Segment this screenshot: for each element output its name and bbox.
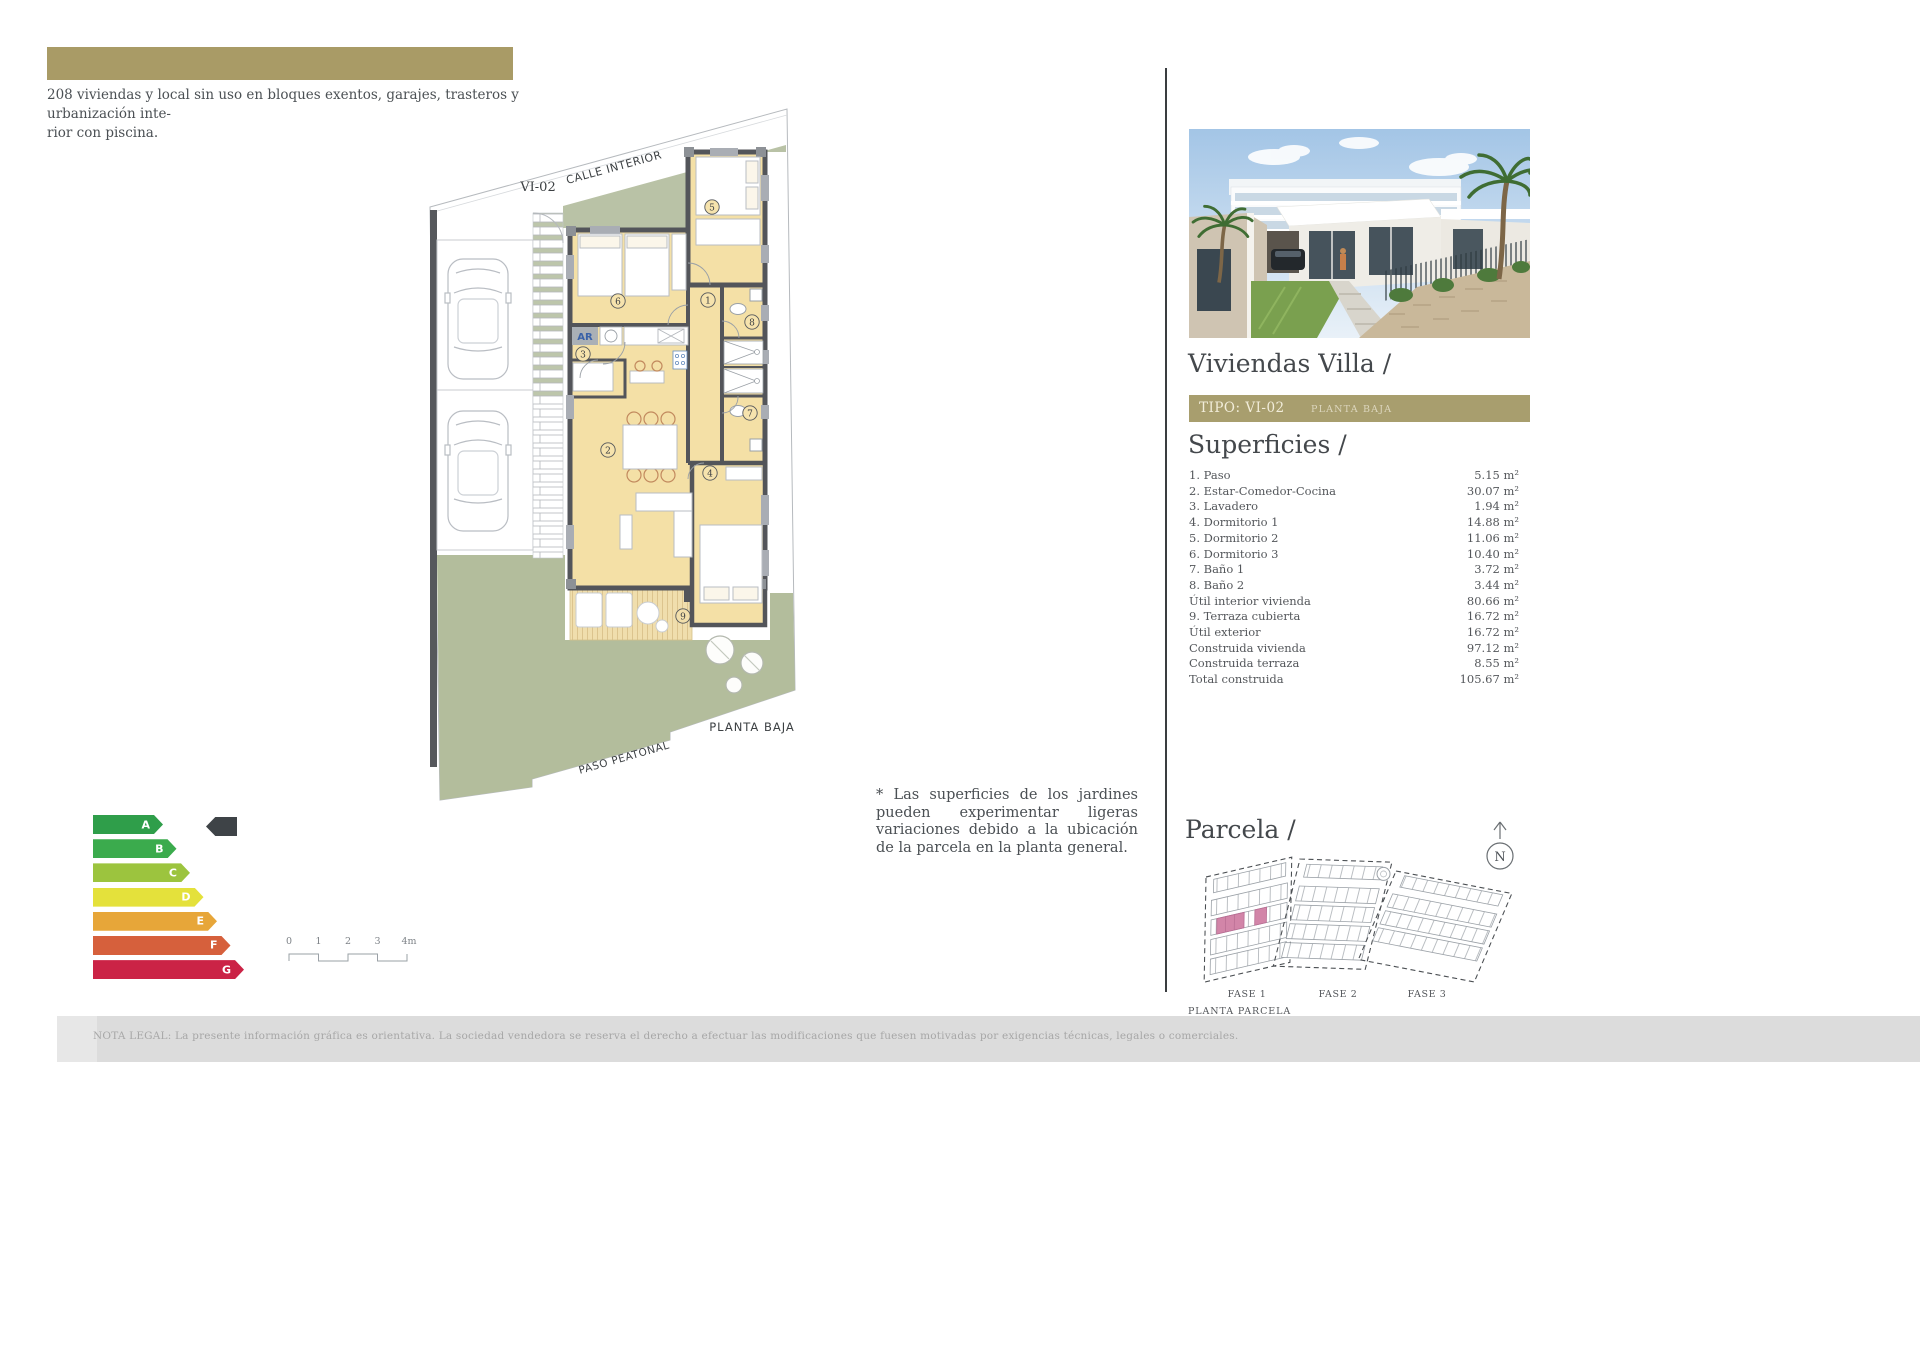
surface-row: 3. Lavadero1.94 m²: [1189, 499, 1519, 515]
energy-row-e: E: [93, 912, 293, 931]
energy-row-a: A: [93, 815, 293, 834]
fase-label-3: FASE 3: [1408, 989, 1447, 1000]
surface-value: 30.07 m²: [1467, 484, 1519, 500]
surfaces-table: 1. Paso5.15 m²2. Estar-Comedor-Cocina30.…: [1189, 468, 1519, 688]
room-5-number: 5: [709, 203, 715, 213]
energy-letter: G: [222, 963, 231, 976]
unit-label: VI-02: [519, 180, 555, 195]
surface-label: Útil exterior: [1189, 625, 1261, 641]
surface-row: 2. Estar-Comedor-Cocina30.07 m²: [1189, 484, 1519, 500]
surface-label: 5. Dormitorio 2: [1189, 531, 1278, 547]
surface-row: 4. Dormitorio 114.88 m²: [1189, 515, 1519, 531]
energy-arrow-icon: E: [93, 912, 217, 931]
room-8-number: 8: [749, 318, 755, 328]
car-bottom-icon: [445, 411, 511, 531]
villa-render-photo: [1189, 129, 1530, 338]
floor-plan-drawing: AR: [420, 95, 810, 815]
surface-value: 3.44 m²: [1474, 578, 1519, 594]
surface-row: 7. Baño 13.72 m²: [1189, 562, 1519, 578]
surface-label: 1. Paso: [1189, 468, 1231, 484]
room-9-number: 9: [680, 612, 686, 622]
energy-letter: A: [141, 818, 150, 831]
legal-bar: NOTA LEGAL: La presente información gráf…: [57, 1016, 1920, 1062]
surface-label: Construida terraza: [1189, 656, 1299, 672]
surface-value: 11.06 m²: [1467, 531, 1519, 547]
surfaces-heading: Superficies /: [1188, 430, 1347, 459]
plan-floor-label: PLANTA BAJA: [709, 720, 795, 734]
surface-row: Útil exterior16.72 m²: [1189, 625, 1519, 641]
surface-label: Útil interior vivienda: [1189, 594, 1311, 610]
energy-row-d: D: [93, 888, 293, 907]
fase-label-2: FASE 2: [1319, 989, 1358, 1000]
highlighted-plots-group: [1217, 912, 1245, 934]
surface-value: 97.12 m²: [1467, 641, 1519, 657]
hob-icon: [673, 351, 687, 369]
energy-letter: C: [169, 866, 177, 879]
energy-arrow-icon: B: [93, 839, 177, 858]
type-label: TIPO: VI-02: [1199, 400, 1285, 416]
energy-arrow-icon: G: [93, 960, 244, 979]
surface-row: 8. Baño 23.44 m²: [1189, 578, 1519, 594]
room-4-number: 4: [707, 469, 713, 479]
scale-bar: 01234m: [287, 936, 427, 966]
garden-note: * Las superficies de los jardines pueden…: [876, 787, 1138, 857]
parcela-site-plan: FASE 1FASE 2FASE 3: [1190, 843, 1530, 1003]
energy-row-b: B: [93, 839, 293, 858]
surface-value: 80.66 m²: [1467, 594, 1519, 610]
room-6-number: 6: [615, 297, 621, 307]
floor-plan: AR: [420, 95, 810, 815]
energy-efficiency-label: ABCDEFG: [93, 815, 293, 984]
surface-row: Total construida105.67 m²: [1189, 672, 1519, 688]
roundabout-icon: [1377, 867, 1390, 880]
energy-row-g: G: [93, 960, 293, 979]
energy-arrow-icon: F: [93, 936, 231, 955]
room-2-number: 2: [605, 446, 611, 456]
type-floor-label: PLANTA BAJA: [1311, 404, 1392, 415]
surface-row: 5. Dormitorio 211.06 m²: [1189, 531, 1519, 547]
surface-row: 9. Terraza cubierta16.72 m²: [1189, 609, 1519, 625]
surface-value: 5.15 m²: [1474, 468, 1519, 484]
laundry-tag-label: AR: [577, 332, 593, 343]
vertical-divider: [1165, 68, 1167, 992]
fase-label-1: FASE 1: [1228, 989, 1267, 1000]
energy-row-f: F: [93, 936, 293, 955]
surface-value: 14.88 m²: [1467, 515, 1519, 531]
surface-label: 9. Terraza cubierta: [1189, 609, 1300, 625]
surface-row: Construida terraza8.55 m²: [1189, 656, 1519, 672]
surface-label: Total construida: [1189, 672, 1284, 688]
bedroom2-bed: [696, 157, 760, 245]
surface-label: 4. Dormitorio 1: [1189, 515, 1278, 531]
highlighted-plot-single: [1255, 907, 1267, 925]
surface-row: Construida vivienda97.12 m²: [1189, 641, 1519, 657]
surface-value: 10.40 m²: [1467, 547, 1519, 563]
garage-left-wall: [430, 210, 437, 767]
legal-bar-accent: [57, 1016, 97, 1062]
energy-arrow-icon: C: [93, 863, 190, 882]
surface-value: 16.72 m²: [1467, 609, 1519, 625]
surface-value: 16.72 m²: [1467, 625, 1519, 641]
surface-value: 3.72 m²: [1474, 562, 1519, 578]
energy-letter: E: [196, 915, 204, 928]
room-3-number: 3: [580, 350, 586, 360]
surface-label: 2. Estar-Comedor-Cocina: [1189, 484, 1336, 500]
energy-row-c: C: [93, 863, 293, 882]
surface-label: 3. Lavadero: [1189, 499, 1258, 515]
room-7-number: 7: [747, 409, 753, 419]
type-bar: TIPO: VI-02 PLANTA BAJA: [1189, 395, 1530, 422]
pergola-slats: [533, 213, 563, 558]
surface-label: 7. Baño 1: [1189, 562, 1244, 578]
person-figure: [1340, 248, 1346, 270]
surface-value: 1.94 m²: [1474, 499, 1519, 515]
surface-value: 8.55 m²: [1474, 656, 1519, 672]
car-top-icon: [445, 259, 511, 379]
energy-letter: D: [181, 891, 190, 904]
page-title: Viviendas Villa /: [1188, 349, 1391, 378]
energy-arrow-icon: D: [93, 888, 204, 907]
room-1-number: 1: [705, 296, 711, 306]
energy-arrow-icon: A: [93, 815, 163, 834]
fase-3-block: [1358, 867, 1511, 986]
energy-letter: F: [210, 939, 218, 952]
surface-row: 1. Paso5.15 m²: [1189, 468, 1519, 484]
surface-row: 6. Dormitorio 310.40 m²: [1189, 547, 1519, 563]
surface-row: Útil interior vivienda80.66 m²: [1189, 594, 1519, 610]
surface-value: 105.67 m²: [1460, 672, 1519, 688]
legal-text: NOTA LEGAL: La presente información gráf…: [93, 1030, 1238, 1042]
scale-bar-graphic: [287, 936, 427, 966]
surface-label: 8. Baño 2: [1189, 578, 1244, 594]
parcela-heading: Parcela /: [1185, 815, 1296, 844]
surface-label: Construida vivienda: [1189, 641, 1306, 657]
surface-label: 6. Dormitorio 3: [1189, 547, 1278, 563]
laundry-closet: [573, 363, 613, 391]
energy-letter: B: [155, 842, 163, 855]
header-gold-bar: [47, 47, 513, 80]
